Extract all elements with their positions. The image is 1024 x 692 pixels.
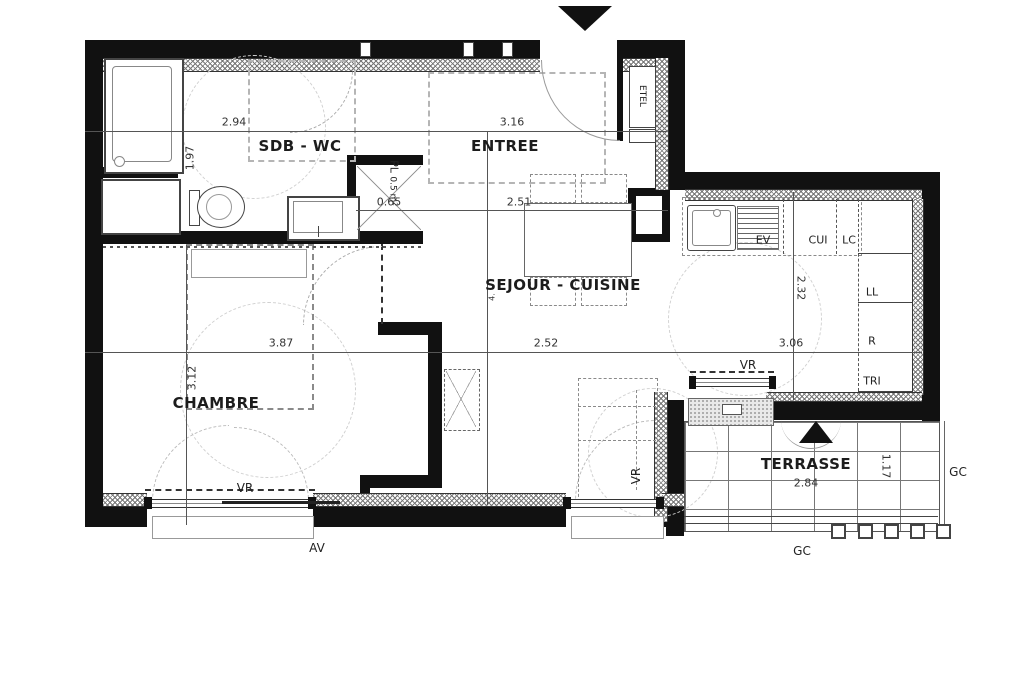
shutter-label-terrace: VR [740, 358, 757, 372]
railing-post [858, 524, 873, 539]
window-terrace [692, 378, 772, 387]
insulation-right [912, 199, 924, 395]
dim-sdb-width: 2.94 [222, 116, 247, 129]
railing-label-right: GC [949, 465, 967, 479]
plant-box-sketch [446, 371, 476, 427]
dim-entree-width: 3.16 [500, 116, 525, 129]
sofa [578, 378, 658, 507]
insulation-bottom-2 [313, 493, 566, 507]
window-cap [563, 497, 571, 509]
dim-line-h2 [356, 210, 668, 211]
kitchen-tap-icon [713, 209, 721, 217]
sofa-backrest-line [578, 406, 656, 407]
railing-label-bottom: GC [793, 544, 811, 558]
entrance-arrow-icon [558, 6, 612, 31]
appliance-column-edge [858, 199, 859, 391]
shutter-line-chambre [145, 489, 315, 491]
wall-bottom-1 [85, 505, 147, 527]
window-cap [144, 497, 152, 509]
room-label-sdb: SDB - WC [259, 137, 342, 155]
railing-post [884, 524, 899, 539]
wall-kitchen-top [685, 172, 940, 189]
wall-notch [360, 42, 371, 57]
appliance-divider-1 [858, 302, 912, 303]
railing-post [910, 524, 925, 539]
counter-divider-1 [783, 199, 784, 254]
wall-notch [463, 42, 474, 57]
wall-bottom-2 [313, 505, 566, 527]
sofa-seat-line [578, 440, 656, 441]
dim-terrasse-width: 2.84 [794, 477, 819, 490]
railing-post [936, 524, 951, 539]
wall-notch [502, 42, 513, 57]
dim-sejour-height: 2.32 [795, 276, 808, 301]
dim-chambre-height: 3.12 [186, 366, 199, 391]
dim-sejour-mid-width: 2.52 [534, 337, 559, 350]
room-label-chambre: CHAMBRE [173, 394, 260, 412]
waste-label: TRI [863, 375, 881, 388]
insulation-bottom-1 [103, 493, 147, 507]
sink-label: EV [756, 234, 770, 247]
dim-sejour-right-width: 3.06 [779, 337, 804, 350]
wall-partition-vertical [428, 322, 442, 488]
appliance-divider-3 [858, 391, 912, 392]
vanity-tap-icon [318, 226, 319, 237]
wall-entree-east [667, 40, 685, 190]
toilet-bowl-inner [206, 194, 232, 220]
railing-post [831, 524, 846, 539]
closet-pl-code: PL [388, 160, 401, 173]
window-sejour [566, 499, 662, 508]
dining-table [524, 203, 632, 277]
bed-pillow [191, 249, 307, 278]
shower-tray-inner [112, 66, 172, 162]
counter-divider-2 [836, 199, 837, 254]
window-sill-sejour [571, 516, 664, 539]
chambre-door-arc [303, 246, 382, 325]
terrace-door-arrow-icon [799, 421, 833, 443]
terrace-planter-detail [722, 404, 742, 415]
terrace-railing-right [944, 421, 945, 531]
kitchen-sink-bowl [692, 210, 731, 246]
terrace-railing-line [684, 516, 938, 524]
insulation-entree-east [655, 58, 669, 190]
bathroom-cabinet [101, 179, 181, 235]
dim-sejour-top-width: 2.51 [507, 196, 532, 209]
wall-right [922, 172, 940, 422]
dim-chambre-width: 3.87 [269, 337, 294, 350]
window-cap [656, 497, 664, 509]
shutter-label-chambre: VR [237, 481, 254, 495]
lc-label: LC [842, 234, 856, 247]
window-sill-chambre [152, 516, 314, 539]
fridge-label: R [868, 335, 876, 348]
dim-closet-width: 0.65 [377, 196, 402, 209]
room-label-entree: ENTREE [471, 137, 539, 155]
etel-label: ETEL [637, 85, 647, 107]
chair [581, 174, 627, 203]
dim-sdb-depth: 1.97 [184, 146, 197, 171]
window-cap [769, 376, 776, 389]
room-label-sejour: SEJOUR - CUISINE [485, 276, 641, 294]
window-sash [222, 501, 340, 504]
duct-column-core [636, 196, 662, 234]
appliance-divider-0 [858, 253, 912, 254]
dim-terrasse-depth: 1.17 [880, 454, 893, 479]
cooking-label: CUI [809, 234, 828, 247]
washer-label: LL [866, 286, 878, 299]
wall-left [85, 40, 103, 527]
shower-drain-icon [114, 156, 125, 167]
insulation-sejour-south [766, 392, 922, 402]
sill-label: AV [309, 541, 325, 555]
wall-partition-bottom [360, 475, 440, 488]
shutter-line-terrace [690, 371, 774, 373]
partition-dotted-line [103, 246, 421, 248]
chair [530, 174, 576, 203]
dim-line-h3 [85, 352, 922, 353]
wall-closet-top [347, 155, 423, 165]
wall-sejour-south [766, 400, 940, 420]
floor-plan-canvas: PL 0.5 m² ETEL EV CUI LC LL R TRI [0, 0, 1024, 692]
window-cap [689, 376, 696, 389]
dim-partial: 4. [488, 293, 497, 301]
dim-line-h1 [85, 131, 667, 132]
dim-line-v2 [487, 131, 488, 505]
shutter-label-sejour: VR [629, 468, 643, 485]
room-label-terrasse: TERRASSE [761, 455, 851, 473]
